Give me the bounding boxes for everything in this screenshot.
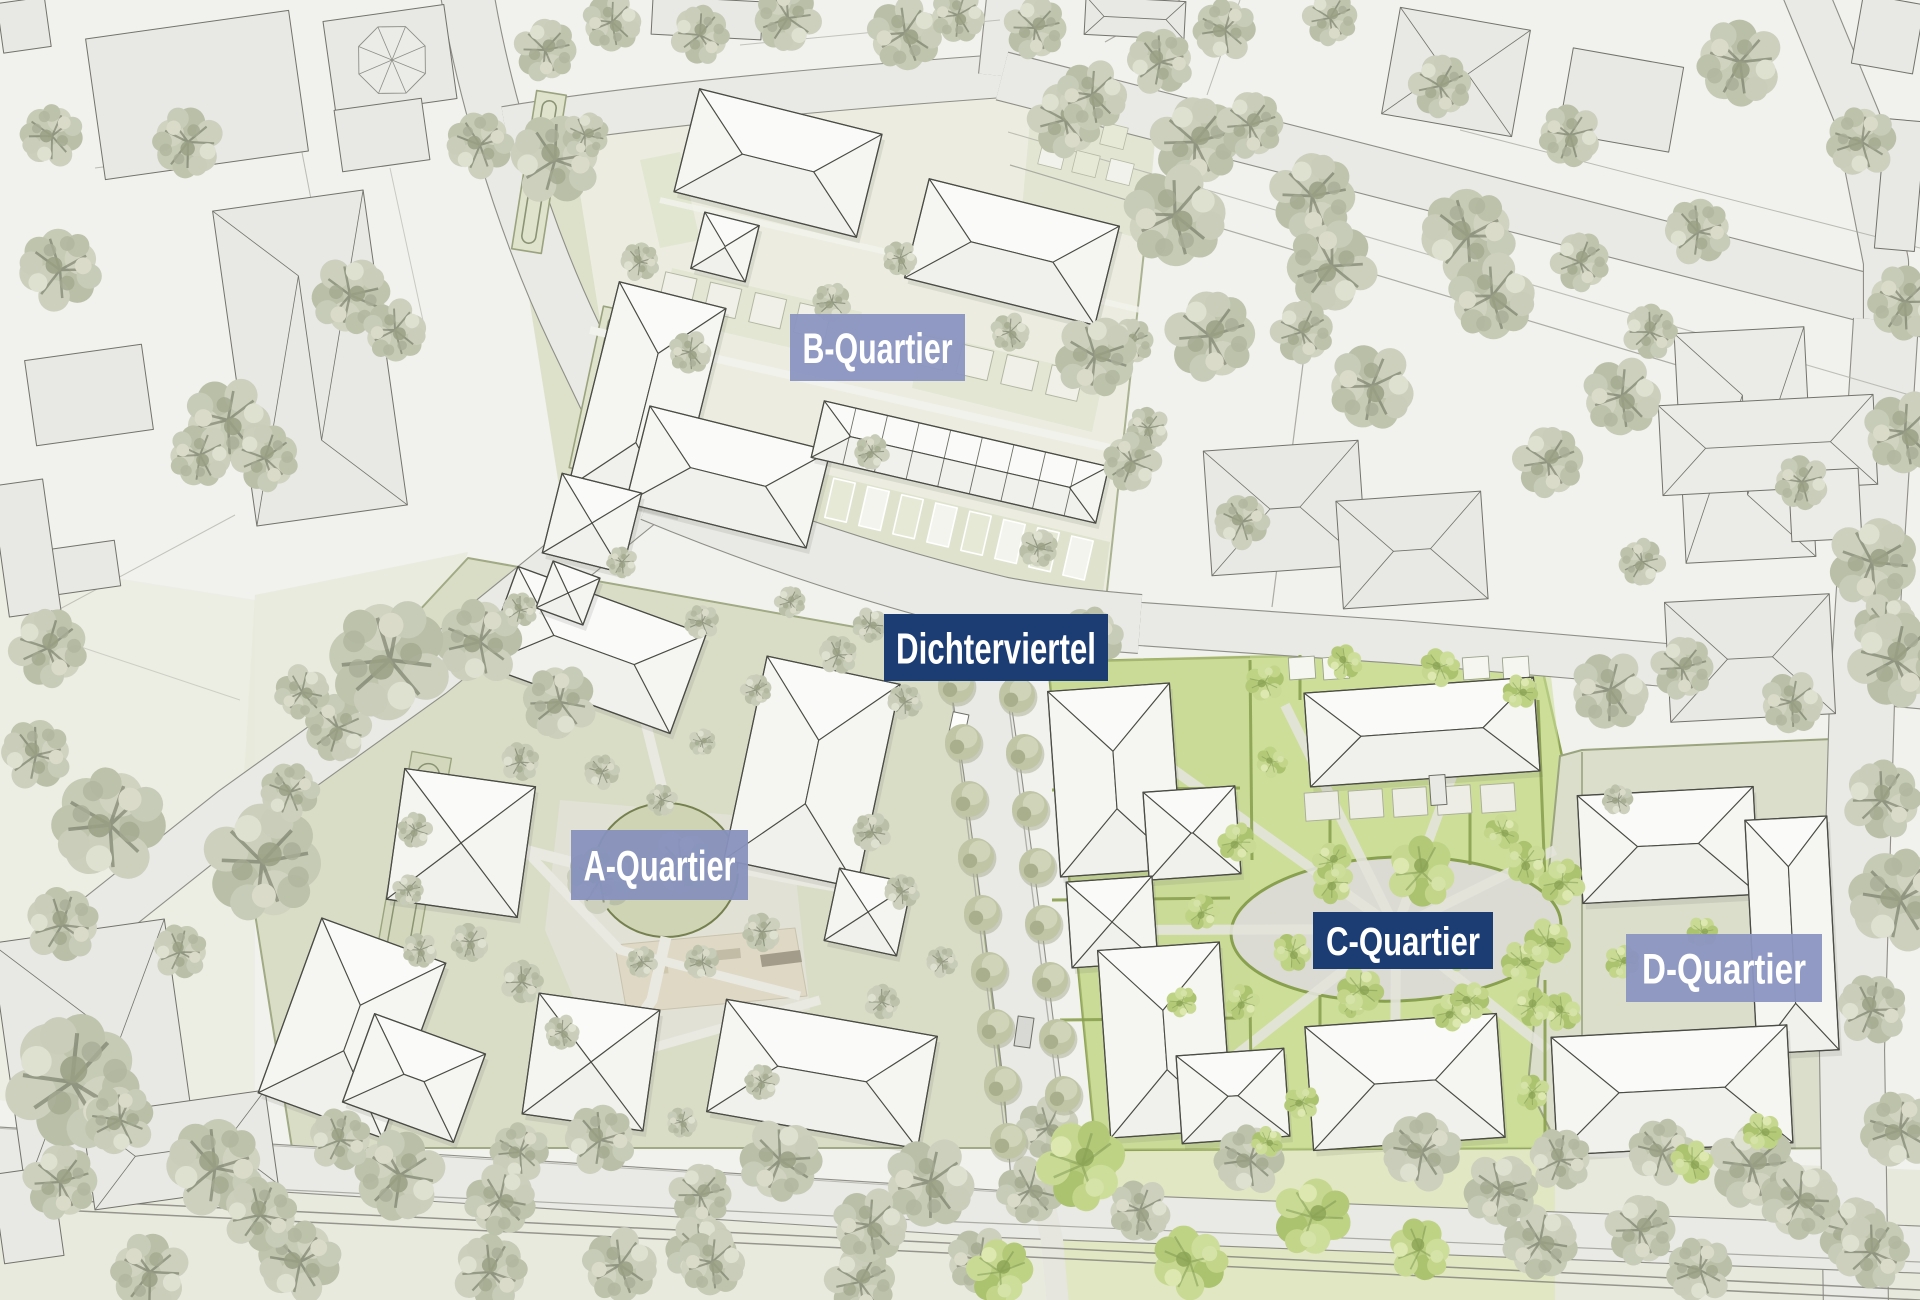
svg-text:B-Quartier: B-Quartier [803,325,953,373]
svg-text:D-Quartier: D-Quartier [1642,945,1806,993]
svg-text:Dichterviertel: Dichterviertel [896,624,1096,673]
svg-text:C-Quartier: C-Quartier [1326,920,1480,964]
svg-text:A-Quartier: A-Quartier [584,842,736,890]
